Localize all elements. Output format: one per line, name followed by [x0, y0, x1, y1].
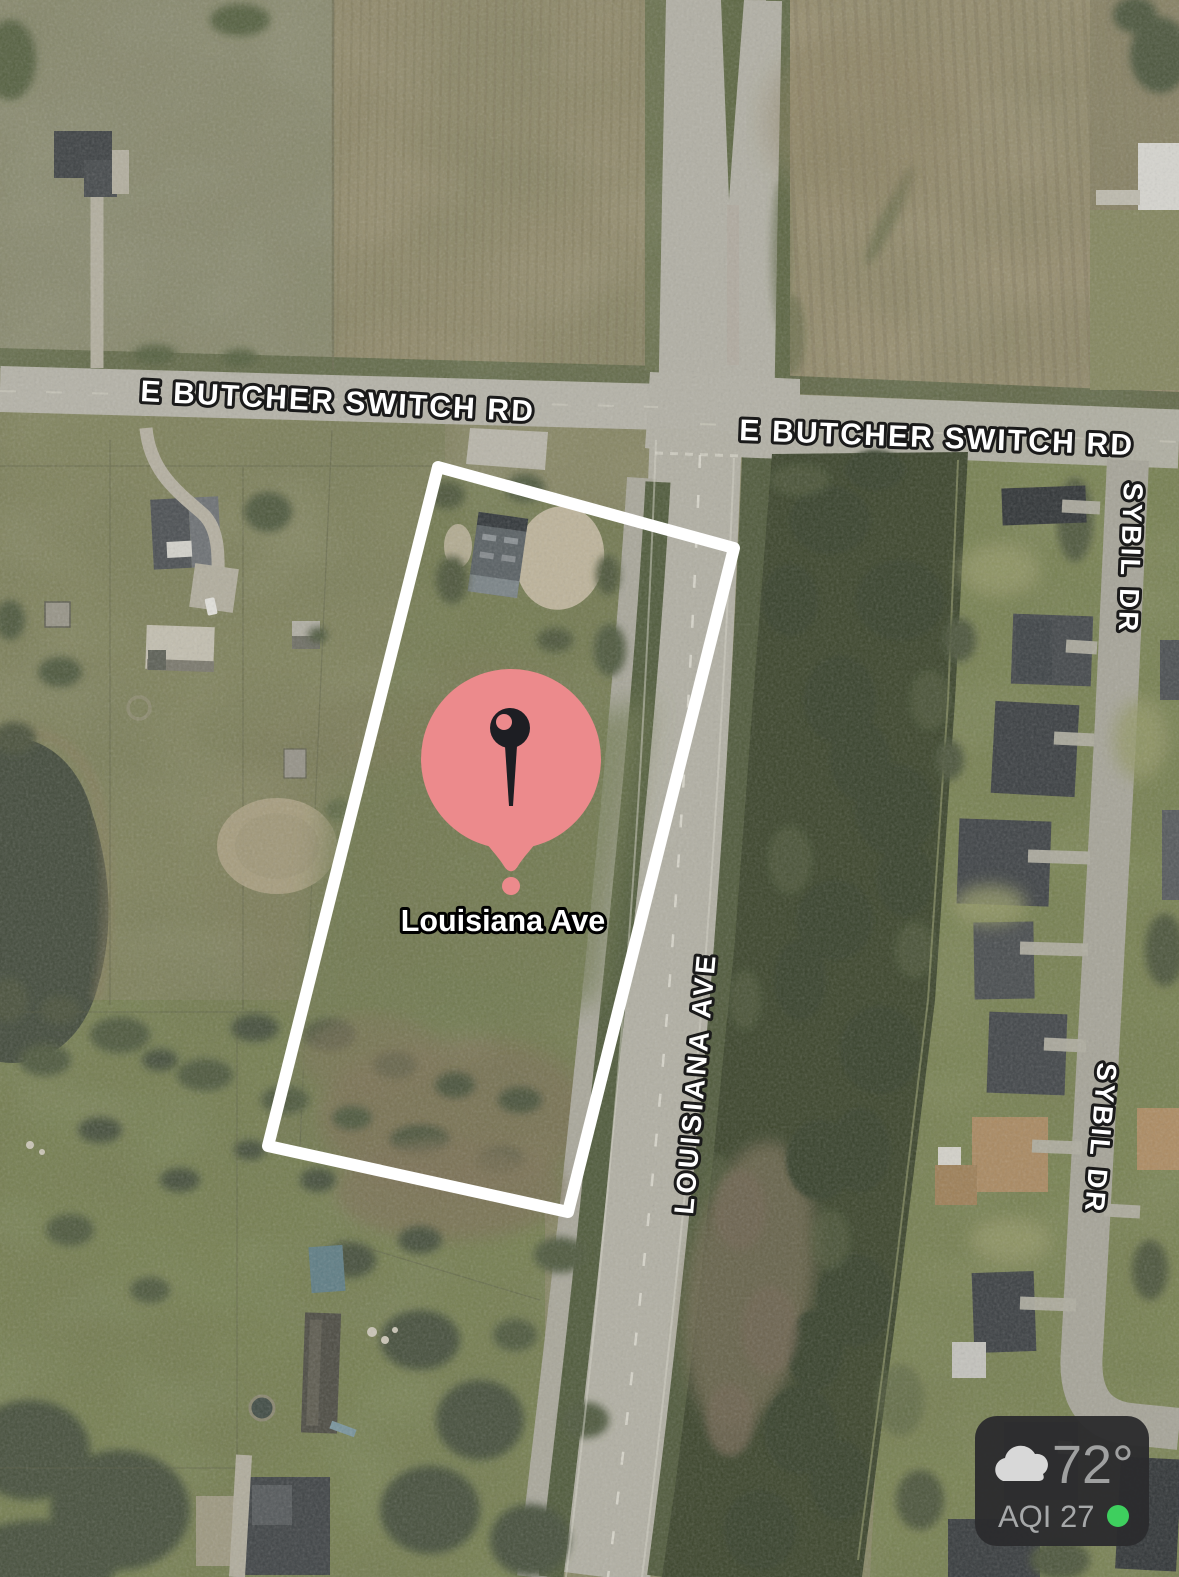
svg-text:72°: 72°: [1052, 1435, 1134, 1495]
svg-text:Louisiana Ave: Louisiana Ave: [401, 904, 606, 938]
svg-text:SYBIL DR: SYBIL DR: [1113, 482, 1149, 635]
svg-text:AQI 27: AQI 27: [998, 1499, 1095, 1534]
